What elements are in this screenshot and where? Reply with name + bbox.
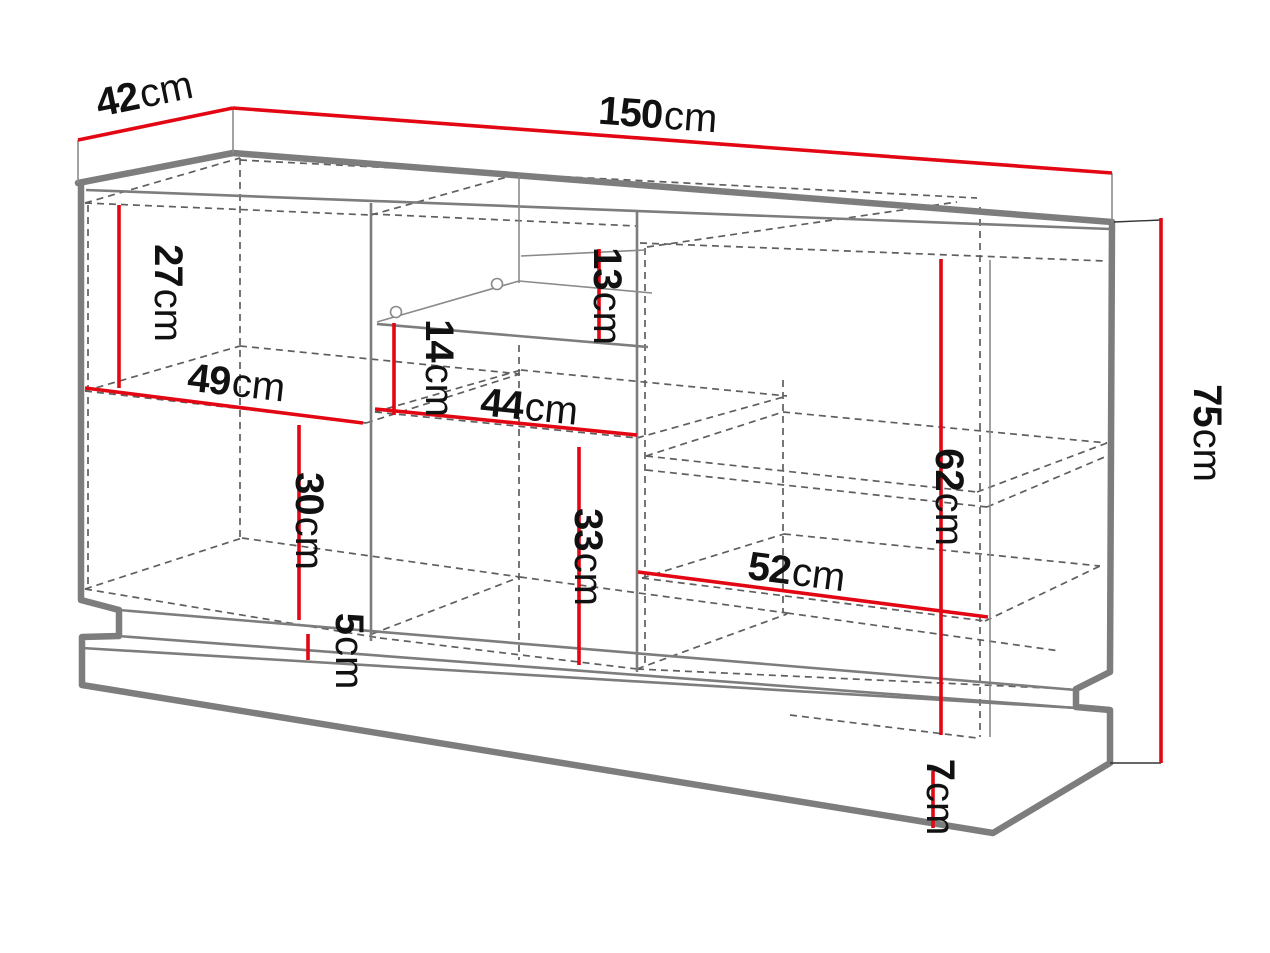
hidden-right-shelf1-depth-r bbox=[977, 443, 1107, 492]
dim-label-glass-gap: 13cm bbox=[585, 247, 629, 345]
shelf-pin-icon bbox=[492, 279, 503, 290]
dim-label-depth: 42cm bbox=[92, 63, 197, 126]
dim-label-height: 75cm bbox=[1185, 384, 1229, 482]
dim-label-mid-width: 44cm bbox=[478, 380, 580, 433]
dim-label-left-bottom: 30cm bbox=[287, 472, 331, 570]
hidden-left-ceiling-front bbox=[85, 203, 371, 215]
hidden-backpanel-bottom bbox=[790, 715, 977, 738]
dim-label-mid-gap: 14cm bbox=[417, 319, 461, 417]
hidden-mid-ceiling-front bbox=[371, 214, 637, 226]
dim-connector-height-top bbox=[1114, 220, 1161, 222]
hidden-right-shelf1-depth-l bbox=[646, 412, 783, 456]
dim-label-width: 150cm bbox=[597, 89, 719, 142]
hidden-floor-back-left bbox=[242, 538, 520, 577]
hidden-mid-shelf-depth-r bbox=[637, 396, 787, 438]
hidden-right-ceiling-front bbox=[640, 243, 1105, 261]
hidden-divider1-top-depth bbox=[371, 173, 521, 215]
hidden-floor-depth-l bbox=[85, 538, 242, 589]
top-panel-bottom-edge bbox=[78, 153, 1112, 222]
hidden-right-shelf2-depth-r bbox=[985, 566, 1100, 621]
sideboard-dimension-diagram: 42cm 150cm 75cm 27cm 49cm 30cm 5cm 13cm … bbox=[0, 0, 1270, 953]
hidden-back-top-edge bbox=[240, 160, 977, 198]
dim-label-right-width: 52cm bbox=[745, 544, 848, 600]
dim-label-mid-bottom: 33cm bbox=[566, 508, 610, 606]
hidden-right-shelf1-back bbox=[783, 412, 1107, 443]
dim-label-plinth-recess: 5cm bbox=[327, 613, 371, 690]
diagram-page: 42cm 150cm 75cm 27cm 49cm 30cm 5cm 13cm … bbox=[0, 0, 1270, 953]
dim-label-left-top: 27cm bbox=[146, 244, 190, 342]
dim-label-base-height: 7cm bbox=[918, 759, 962, 836]
dimension-labels: 42cm 150cm 75cm 27cm 49cm 30cm 5cm 13cm … bbox=[92, 63, 1229, 835]
dim-label-right-height: 62cm bbox=[927, 448, 971, 546]
plinth-top-back-edge bbox=[118, 636, 1076, 708]
hidden-floor-depth-div1 bbox=[372, 577, 520, 634]
shelf-pin-icon bbox=[391, 307, 402, 318]
hidden-floor-back-right bbox=[787, 613, 1060, 651]
